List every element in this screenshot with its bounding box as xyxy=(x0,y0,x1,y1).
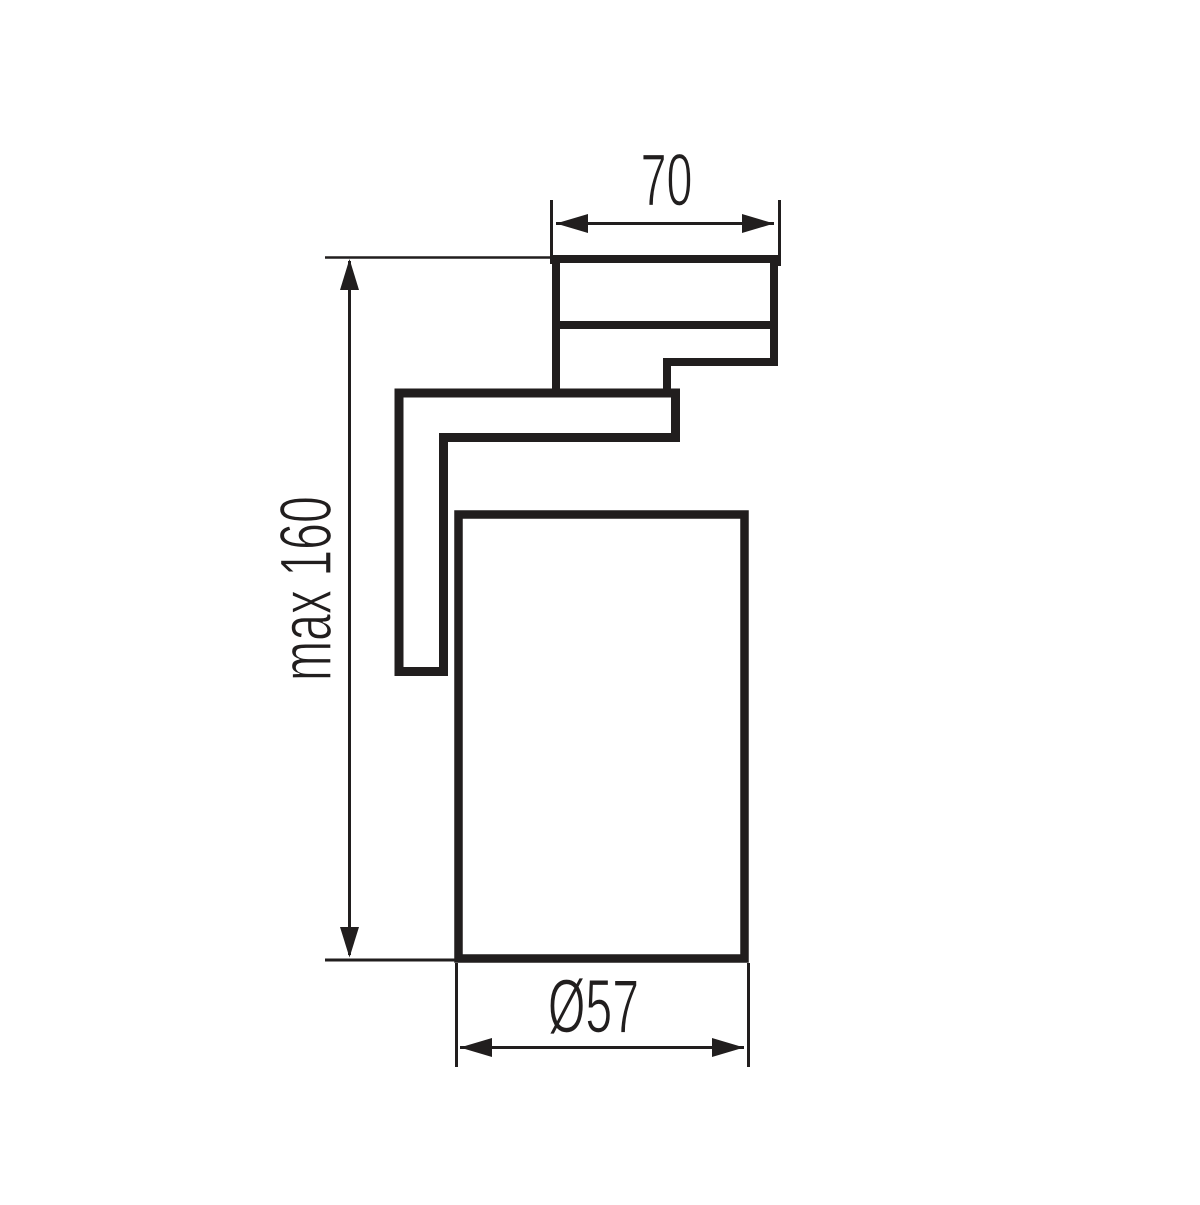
svg-text:70: 70 xyxy=(641,140,693,223)
svg-text:Ø57: Ø57 xyxy=(548,964,639,1049)
svg-text:max 160: max 160 xyxy=(266,496,347,681)
